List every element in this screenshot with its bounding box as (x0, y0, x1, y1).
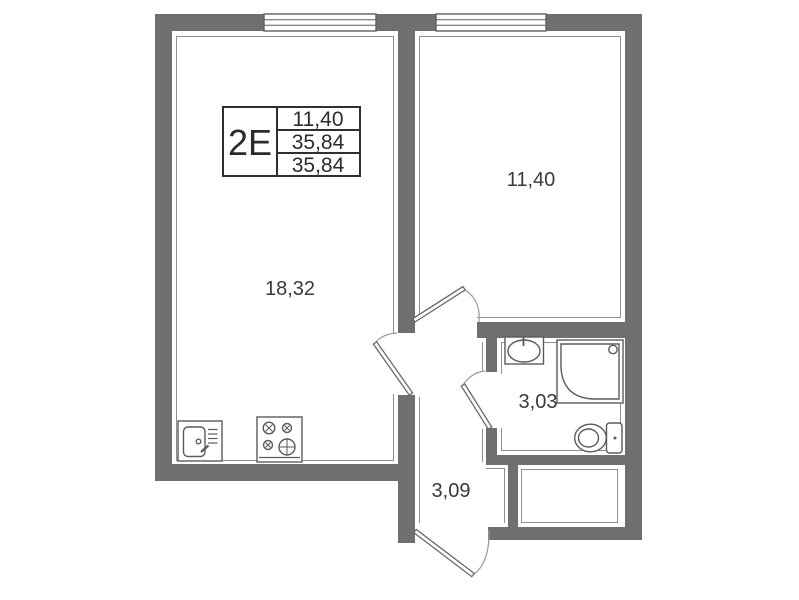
bathroom-door (461, 371, 491, 429)
area-value-row2: 35,84 (292, 131, 345, 154)
door-leaf-icon (461, 384, 491, 429)
outline-gap-bedroom-door (421, 315, 477, 320)
kitchen-sink-icon (178, 421, 222, 461)
washbasin-icon (505, 337, 544, 364)
door-swing-arc-icon (463, 371, 485, 385)
wall-closet-left (508, 465, 518, 527)
floor-plan-canvas: 2Е 11,40 35,84 35,84 18,32 11,40 3,03 3,… (0, 0, 799, 600)
window-icon (436, 14, 546, 31)
wall-partition-lower (398, 395, 415, 543)
door-swing-arc-icon (473, 530, 489, 575)
entrance-door (414, 529, 489, 576)
bedroom-area-label: 11,40 (507, 169, 556, 191)
wall-top-middle (376, 14, 436, 31)
area-value-row3: 35,84 (292, 154, 345, 177)
wall-bathroom-left-upper (486, 338, 497, 372)
unit-type-label: 2Е (228, 122, 272, 163)
toilet-button (614, 437, 617, 440)
area-value-row1: 11,40 (293, 108, 344, 131)
bathroom-area-label: 3,03 (519, 391, 558, 413)
living-kitchen-area-label: 18,32 (265, 278, 315, 300)
wall-partition-upper (398, 31, 415, 333)
wall-bottom-right (488, 527, 642, 540)
closet-room (522, 470, 618, 523)
wall-left (155, 14, 172, 481)
window-icon (264, 14, 376, 31)
wall-bathroom-bottom (492, 455, 625, 465)
floor-plan-svg: 2Е 11,40 35,84 35,84 18,32 11,40 3,03 3,… (0, 0, 799, 600)
wall-bottom-living (155, 464, 415, 481)
hallway-area-label: 3,09 (432, 480, 471, 502)
wall-bedroom-bottom (477, 322, 625, 338)
stove-icon (257, 417, 302, 462)
living-kitchen-room (177, 37, 394, 461)
wall-right (625, 14, 642, 540)
toilet-icon (575, 423, 622, 453)
shower-cabin-icon (557, 340, 623, 403)
outline-gap-bathroom-door (500, 374, 504, 428)
door-leaf-icon (414, 529, 474, 576)
title-block: 2Е 11,40 35,84 35,84 (223, 107, 360, 177)
